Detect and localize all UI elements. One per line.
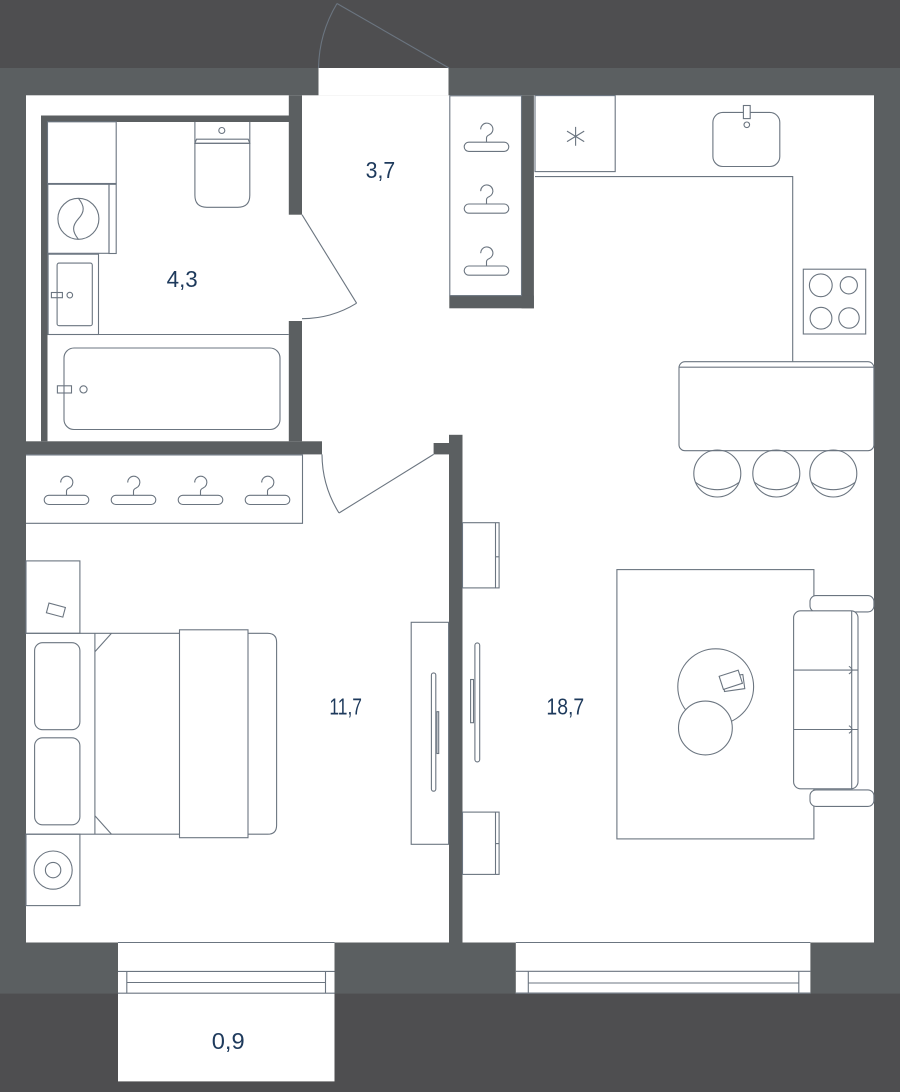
svg-text:11,7: 11,7 xyxy=(329,693,362,719)
svg-text:4,3: 4,3 xyxy=(167,266,198,292)
svg-text:18,7: 18,7 xyxy=(546,693,584,719)
svg-text:0,9: 0,9 xyxy=(212,1028,245,1054)
svg-text:3,7: 3,7 xyxy=(366,157,396,183)
